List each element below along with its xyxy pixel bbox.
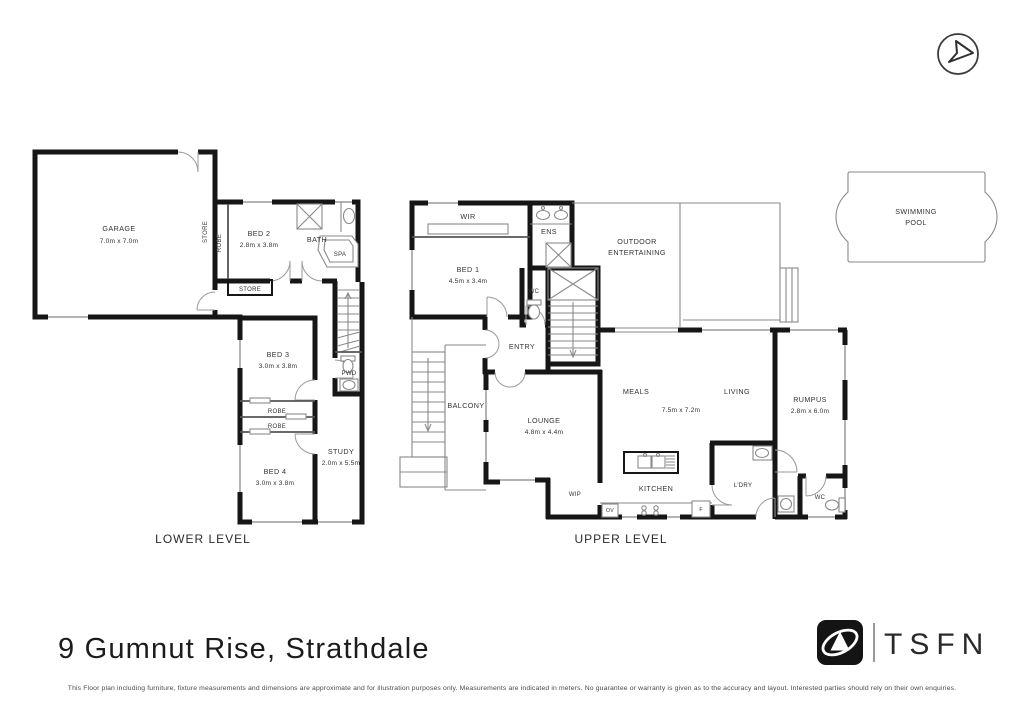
rumpus-label: RUMPUS bbox=[793, 395, 827, 404]
upper-level-plan: WIR BED 1 4.5m x 3.4m ENS WC ENTRY OUTDO… bbox=[400, 203, 847, 546]
bed3-label: BED 3 bbox=[267, 350, 290, 359]
entry-label: ENTRY bbox=[509, 342, 535, 351]
pool-label-1: SWIMMING bbox=[895, 207, 937, 216]
study-label: STUDY bbox=[328, 447, 354, 456]
compass-north-icon bbox=[938, 34, 978, 74]
ens-label: ENS bbox=[541, 227, 557, 236]
outdoor-label-1: OUTDOOR bbox=[617, 237, 657, 246]
meals-living-dims: 7.5m x 7.2m bbox=[662, 407, 701, 414]
upper-stairwell bbox=[548, 268, 598, 357]
floor-plan-page: GARAGE 7.0m x 7.0m STORE ROBE BED 2 2.8m… bbox=[0, 0, 1024, 725]
lower-level-title: LOWER LEVEL bbox=[155, 532, 251, 546]
bed3-dims: 3.0m x 3.8m bbox=[259, 363, 298, 370]
swimming-pool: SWIMMING POOL bbox=[836, 172, 997, 262]
bed2-dims: 2.8m x 3.8m bbox=[240, 242, 279, 249]
property-address: 9 Gumnut Rise, Strathdale bbox=[58, 633, 430, 665]
spa-label: SPA bbox=[334, 252, 346, 258]
tsfn-logo-icon bbox=[817, 620, 863, 665]
wc-rear-label: WC bbox=[815, 495, 826, 501]
wir-label: WIR bbox=[460, 212, 475, 221]
lower-windows bbox=[48, 202, 352, 522]
robe-bed2-label: ROBE bbox=[217, 234, 223, 252]
lounge-label: LOUNGE bbox=[528, 416, 561, 425]
lower-stairs bbox=[335, 290, 362, 352]
pwd-label: PWD bbox=[342, 371, 357, 377]
lower-level-plan: GARAGE 7.0m x 7.0m STORE ROBE BED 2 2.8m… bbox=[35, 152, 362, 546]
robe-bed3-label: ROBE bbox=[268, 409, 286, 415]
bed2-label: BED 2 bbox=[248, 229, 271, 238]
oven-label: OV bbox=[606, 508, 614, 514]
wip-label: WIP bbox=[569, 492, 581, 498]
brand-name: TSFN bbox=[884, 628, 990, 661]
kitchen-label: KITCHEN bbox=[639, 484, 673, 493]
living-label: LIVING bbox=[724, 387, 750, 396]
rumpus-dims: 2.8m x 6.0m bbox=[791, 408, 830, 415]
disclaimer-text: This Floor plan including furniture, fix… bbox=[68, 685, 956, 692]
lower-doors bbox=[178, 152, 353, 454]
store-vertical-label: STORE bbox=[203, 221, 209, 243]
floor-plan-canvas: GARAGE 7.0m x 7.0m STORE ROBE BED 2 2.8m… bbox=[0, 0, 1024, 725]
outdoor-deck bbox=[572, 203, 798, 328]
laundry-label: L'DRY bbox=[734, 483, 753, 489]
footer: 9 Gumnut Rise, Strathdale TSFN This Floo… bbox=[58, 620, 990, 692]
robe-bed4-label: ROBE bbox=[268, 424, 286, 430]
outdoor-label-2: ENTERTAINING bbox=[608, 248, 666, 257]
garage-label: GARAGE bbox=[102, 224, 135, 233]
balcony-label: BALCONY bbox=[447, 401, 484, 410]
pool-label-2: POOL bbox=[905, 218, 927, 227]
upper-level-title: UPPER LEVEL bbox=[574, 532, 667, 546]
fridge-label: F bbox=[699, 507, 702, 513]
bed4-label: BED 4 bbox=[264, 467, 287, 476]
study-dims: 2.0m x 5.5m bbox=[322, 460, 361, 467]
lower-room-labels: GARAGE 7.0m x 7.0m STORE ROBE BED 2 2.8m… bbox=[100, 221, 361, 487]
lounge-dims: 4.8m x 4.4m bbox=[525, 429, 564, 436]
meals-label: MEALS bbox=[623, 387, 649, 396]
bed1-dims: 4.5m x 3.4m bbox=[449, 278, 488, 285]
store-hall-label: STORE bbox=[239, 287, 261, 293]
garage-dims: 7.0m x 7.0m bbox=[100, 238, 139, 245]
bath-label: BATH bbox=[307, 235, 327, 244]
upper-room-labels: WIR BED 1 4.5m x 3.4m ENS WC ENTRY OUTDO… bbox=[447, 212, 829, 514]
bed1-label: BED 1 bbox=[457, 265, 480, 274]
wc-front-label: WC bbox=[529, 289, 540, 295]
bed4-dims: 3.0m x 3.8m bbox=[256, 480, 295, 487]
